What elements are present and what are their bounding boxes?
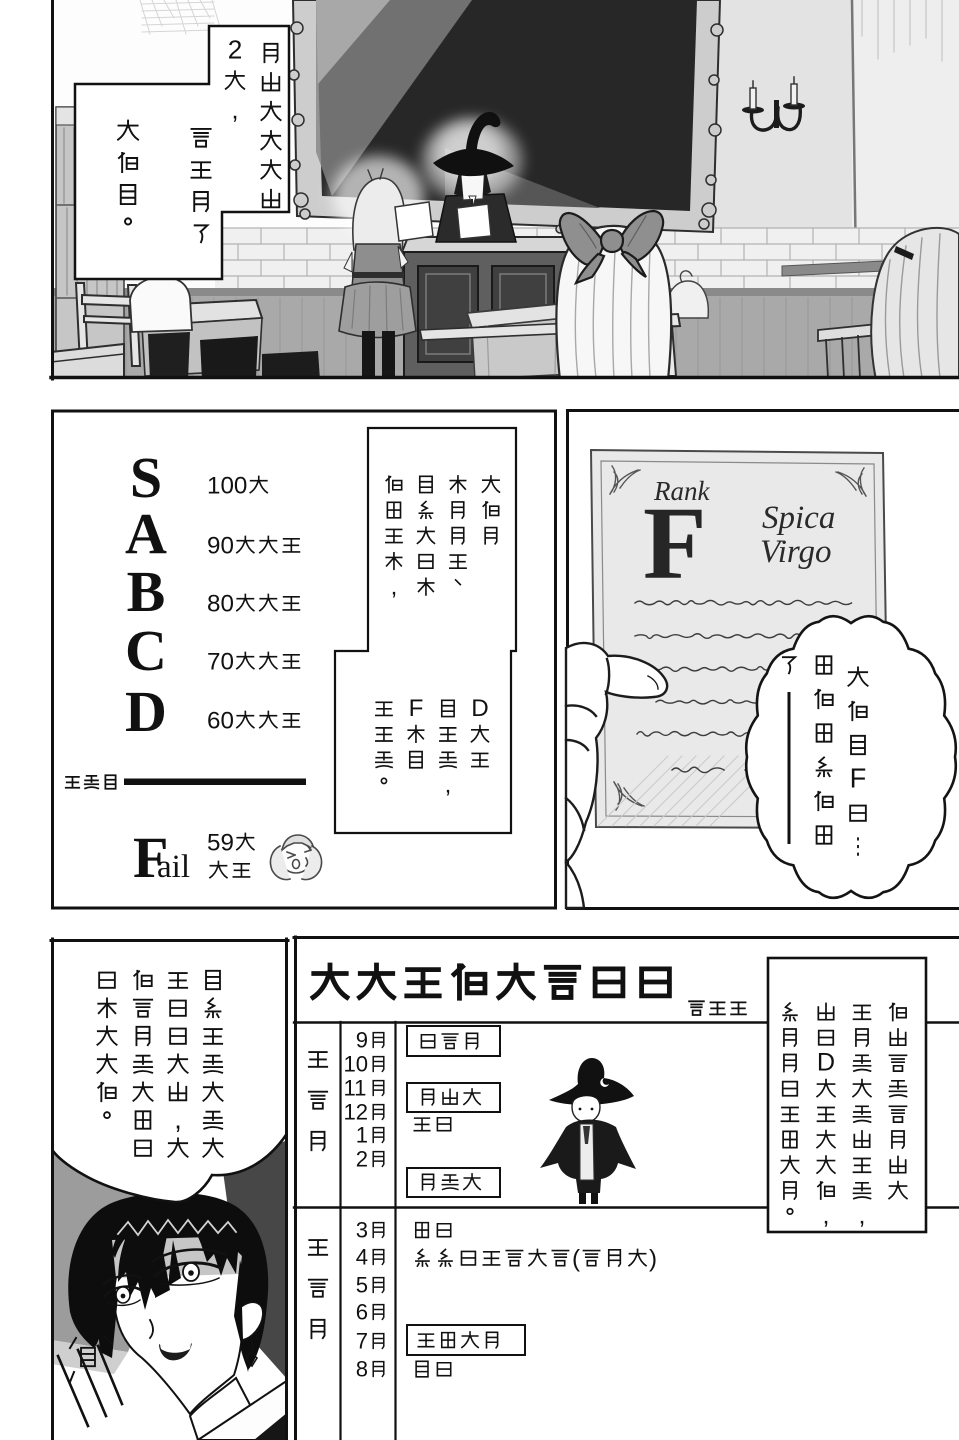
- svg-text:80: 80: [207, 590, 234, 617]
- svg-text:12: 12: [344, 1100, 369, 1125]
- svg-text:,: ,: [231, 95, 238, 125]
- svg-text:,: ,: [445, 772, 452, 799]
- svg-text:2: 2: [228, 35, 243, 65]
- svg-text:2: 2: [356, 1147, 368, 1172]
- svg-text:11: 11: [344, 1076, 367, 1101]
- svg-text:10: 10: [344, 1052, 369, 1077]
- svg-text:6: 6: [356, 1300, 368, 1325]
- svg-text:): ): [649, 1245, 657, 1272]
- svg-text:8: 8: [356, 1357, 368, 1382]
- svg-text:9: 9: [356, 1028, 368, 1053]
- svg-text:(: (: [572, 1245, 580, 1272]
- svg-text:Spica: Spica: [762, 500, 835, 536]
- svg-text:59: 59: [207, 829, 234, 856]
- svg-text:,: ,: [391, 573, 398, 600]
- svg-text:3: 3: [356, 1218, 368, 1243]
- svg-text:A: A: [125, 501, 167, 566]
- svg-text:,: ,: [859, 1202, 866, 1230]
- svg-text:60: 60: [207, 707, 234, 734]
- svg-text:100: 100: [207, 472, 247, 499]
- svg-text:4: 4: [356, 1245, 368, 1270]
- svg-text:70: 70: [207, 648, 234, 675]
- svg-text:D: D: [471, 695, 488, 722]
- svg-text:F: F: [409, 695, 424, 722]
- svg-text:B: B: [127, 559, 166, 624]
- svg-text:,: ,: [174, 1103, 182, 1134]
- svg-text:7: 7: [356, 1329, 368, 1354]
- svg-text:1: 1: [356, 1123, 368, 1148]
- svg-text:D: D: [817, 1049, 835, 1077]
- svg-text:90: 90: [207, 532, 234, 559]
- svg-text:ail: ail: [157, 849, 190, 885]
- svg-text:5: 5: [356, 1273, 368, 1298]
- svg-text:F: F: [850, 762, 867, 793]
- svg-text:C: C: [125, 618, 167, 683]
- svg-text:,: ,: [823, 1202, 830, 1230]
- svg-text:F: F: [643, 486, 707, 601]
- svg-text:Virgo: Virgo: [760, 534, 832, 570]
- svg-text:D: D: [125, 679, 167, 744]
